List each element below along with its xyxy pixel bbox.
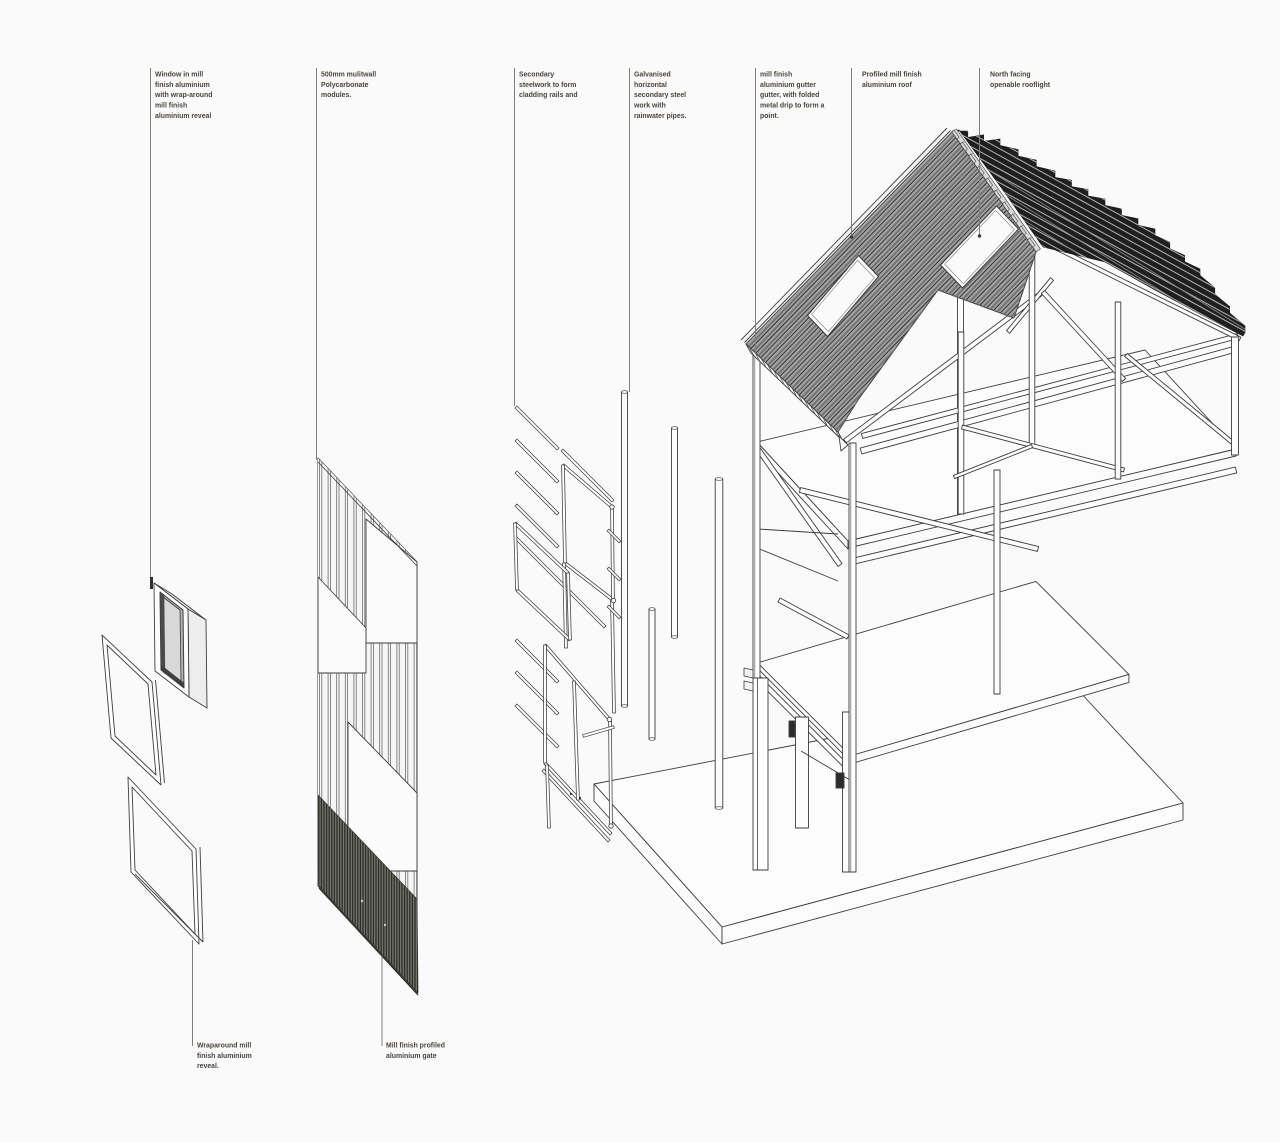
svg-text:aluminium gutter: aluminium gutter	[760, 82, 816, 89]
svg-text:aluminium gate: aluminium gate	[386, 1053, 437, 1060]
svg-text:mill finish: mill finish	[760, 71, 792, 78]
svg-text:North facing: North facing	[990, 71, 1031, 78]
svg-text:metal drip to form a: metal drip to form a	[760, 103, 824, 110]
svg-text:work with: work with	[633, 103, 666, 110]
svg-text:Secondary: Secondary	[519, 71, 554, 78]
svg-text:Polycarbonate: Polycarbonate	[321, 82, 369, 89]
svg-text:Mill finish profiled: Mill finish profiled	[386, 1042, 445, 1049]
svg-text:Window in mill: Window in mill	[155, 71, 203, 78]
svg-text:Galvanised: Galvanised	[634, 71, 671, 78]
svg-text:gutter, with folded: gutter, with folded	[760, 92, 819, 99]
svg-text:openable rooflight: openable rooflight	[990, 82, 1051, 89]
svg-text:aluminium roof: aluminium roof	[862, 82, 912, 89]
svg-text:reveal.: reveal.	[197, 1063, 219, 1070]
svg-text:finish aluminium: finish aluminium	[155, 82, 210, 89]
svg-text:steelwork to form: steelwork to form	[519, 82, 576, 89]
svg-text:secondary steel: secondary steel	[634, 92, 686, 99]
svg-text:horizontal: horizontal	[634, 82, 667, 89]
svg-text:modules.: modules.	[321, 92, 351, 99]
svg-text:aluminium reveal: aluminium reveal	[155, 113, 211, 120]
svg-text:finish aluminium: finish aluminium	[197, 1053, 252, 1060]
svg-text:Wraparound mill: Wraparound mill	[197, 1042, 251, 1049]
svg-text:point.: point.	[760, 113, 779, 120]
svg-text:with wrap-around: with wrap-around	[154, 92, 212, 99]
svg-text:500mm mulitwall: 500mm mulitwall	[321, 71, 376, 78]
svg-text:Profiled mill finish: Profiled mill finish	[862, 71, 922, 78]
svg-text:mill finish: mill finish	[155, 103, 187, 110]
svg-text:rainwater pipes.: rainwater pipes.	[634, 113, 687, 120]
svg-text:cladding rails and: cladding rails and	[519, 92, 578, 99]
